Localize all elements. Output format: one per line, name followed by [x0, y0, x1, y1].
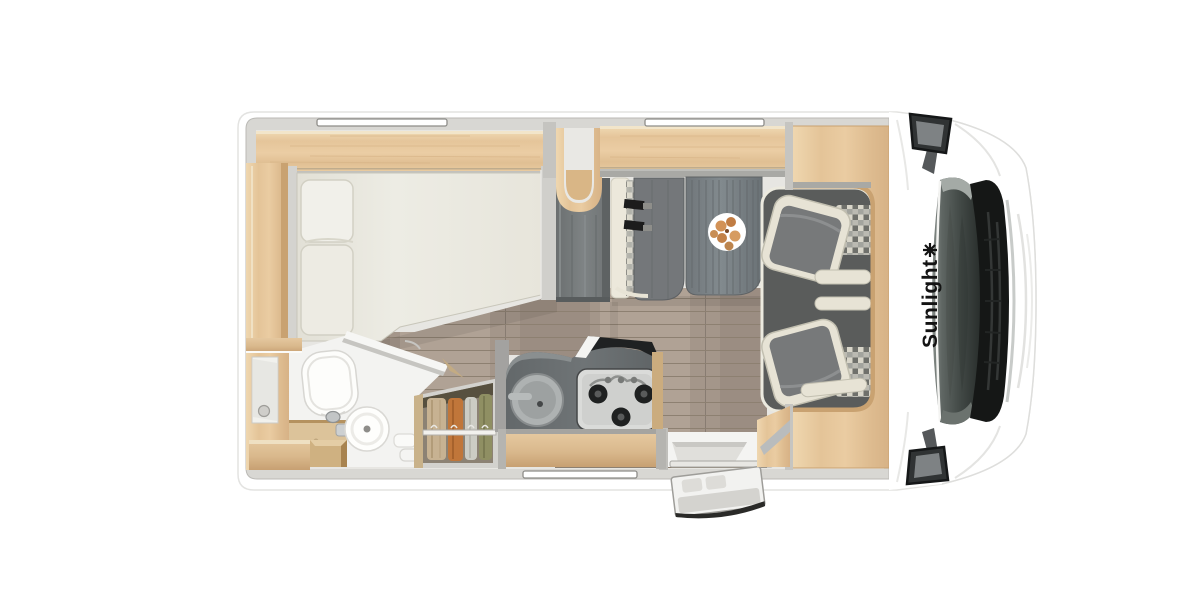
svg-text:Sunlight: Sunlight — [919, 259, 942, 348]
